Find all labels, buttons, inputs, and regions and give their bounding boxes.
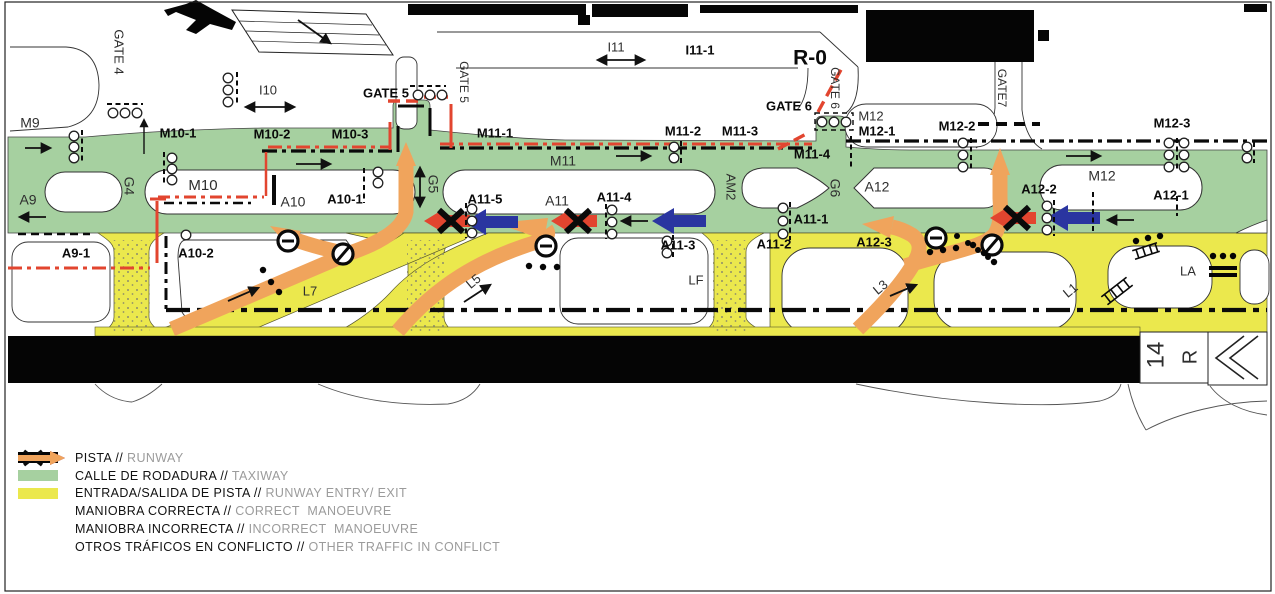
- label-a12-1: A12-1: [1153, 187, 1188, 202]
- legend-color-swatch: [18, 488, 75, 499]
- label-m12: M12: [1088, 168, 1115, 184]
- legend-item-text: MANIOBRA INCORRECTA // INCORRECT MANOEUV…: [75, 522, 418, 536]
- far-side-taxiway-outlines: [95, 384, 1267, 430]
- label-a10-1: A10-1: [327, 191, 362, 206]
- label-m11-2: M11-2: [665, 123, 701, 138]
- label-am2: AM2: [724, 174, 739, 201]
- label-m10: M10: [188, 177, 217, 194]
- label-gate-5: GATE 5: [457, 61, 471, 103]
- label-g6: G6: [827, 179, 843, 198]
- terminal-buildings: [408, 4, 1267, 62]
- color-swatch: [18, 488, 58, 499]
- legend-item-text: CALLE DE RODADURA // TAXIWAY: [75, 469, 289, 483]
- label-l7: L7: [303, 283, 317, 298]
- label-14: 14: [1142, 342, 1169, 369]
- label-m12: M12: [858, 108, 883, 123]
- legend-item-correct-manoeuvre: MANIOBRA CORRECTA // CORRECT MANOEUVRE: [18, 502, 500, 520]
- label-g4: G4: [121, 177, 137, 196]
- label-a12: A12: [865, 179, 890, 195]
- runway: [8, 336, 1140, 383]
- label-a11: A11: [545, 193, 569, 209]
- legend-color-swatch: [18, 470, 75, 481]
- label-m10-1: M10-1: [160, 125, 197, 140]
- label-lf: LF: [688, 272, 703, 287]
- parking-stands-hatch: [232, 10, 393, 55]
- label-i10: I10: [259, 82, 277, 97]
- label-i11: I11: [607, 39, 624, 54]
- label-r-0: R-0: [793, 47, 827, 70]
- label-m12-1: M12-1: [859, 123, 896, 138]
- legend-item-other-traffic-in-conflict: OTROS TRÁFICOS EN CONFLICTO // OTHER TRA…: [18, 538, 500, 556]
- label-m9: M9: [20, 115, 40, 131]
- label-i11-1: I11-1: [686, 42, 715, 57]
- label-a11-3: A11-3: [661, 237, 696, 252]
- label-m12-3: M12-3: [1154, 115, 1191, 130]
- legend-item-incorrect-manoeuvre: MANIOBRA INCORRECTA // INCORRECT MANOEUV…: [18, 520, 500, 538]
- label-g5: G5: [425, 175, 441, 194]
- legend-item-text: ENTRADA/SALIDA DE PISTA // RUNWAY ENTRY/…: [75, 486, 407, 500]
- label-a10: A10: [281, 194, 306, 210]
- label-a12-3: A12-3: [856, 234, 891, 249]
- label-a9: A9: [19, 192, 36, 208]
- label-m11-3: M11-3: [722, 123, 758, 138]
- legend-item-text: PISTA // RUNWAY: [75, 451, 184, 465]
- label-m12-2: M12-2: [939, 118, 976, 133]
- label-a10-2: A10-2: [178, 245, 213, 260]
- label-a11-5: A11-5: [468, 191, 503, 206]
- airport-ground-chart: GATE 4I10GATE 5GATE 5I11I11-1R-0GATE 6GA…: [0, 0, 1275, 594]
- legend: PISTA // RUNWAYCALLE DE RODADURA // TAXI…: [18, 449, 500, 556]
- runway-edge-strip: [95, 327, 1140, 336]
- label-r: R: [1179, 350, 1201, 364]
- label-m10-3: M10-3: [332, 126, 369, 141]
- label-a11-4: A11-4: [597, 189, 632, 204]
- label-gate7: GATE7: [995, 69, 1009, 108]
- legend-item-text: OTROS TRÁFICOS EN CONFLICTO // OTHER TRA…: [75, 540, 500, 554]
- label-gate-4: GATE 4: [112, 29, 127, 74]
- legend-item-runway-entry-exit: ENTRADA/SALIDA DE PISTA // RUNWAY ENTRY/…: [18, 485, 500, 503]
- color-swatch: [18, 470, 58, 481]
- aircraft-icon: [164, 0, 236, 34]
- label-m11: M11: [550, 153, 576, 169]
- label-gate-5: GATE 5: [363, 85, 409, 100]
- label-gate-6: GATE 6: [828, 67, 842, 109]
- label-m10-2: M10-2: [254, 126, 291, 141]
- label-a11-2: A11-2: [757, 236, 792, 251]
- legend-item-runway: PISTA // RUNWAY: [18, 449, 500, 467]
- label-m11-4: M11-4: [794, 146, 831, 161]
- label-a11-1: A11-1: [794, 211, 829, 226]
- label-gate-6: GATE 6: [766, 98, 812, 113]
- label-m11-1: M11-1: [477, 125, 513, 140]
- label-a9-1: A9-1: [62, 245, 90, 260]
- runway-threshold-chevrons: [1208, 332, 1267, 385]
- label-a12-2: A12-2: [1021, 181, 1056, 196]
- label-la: LA: [1180, 263, 1196, 278]
- legend-item-text: MANIOBRA CORRECTA // CORRECT MANOEUVRE: [75, 504, 392, 518]
- legend-item-taxiway: CALLE DE RODADURA // TAXIWAY: [18, 467, 500, 485]
